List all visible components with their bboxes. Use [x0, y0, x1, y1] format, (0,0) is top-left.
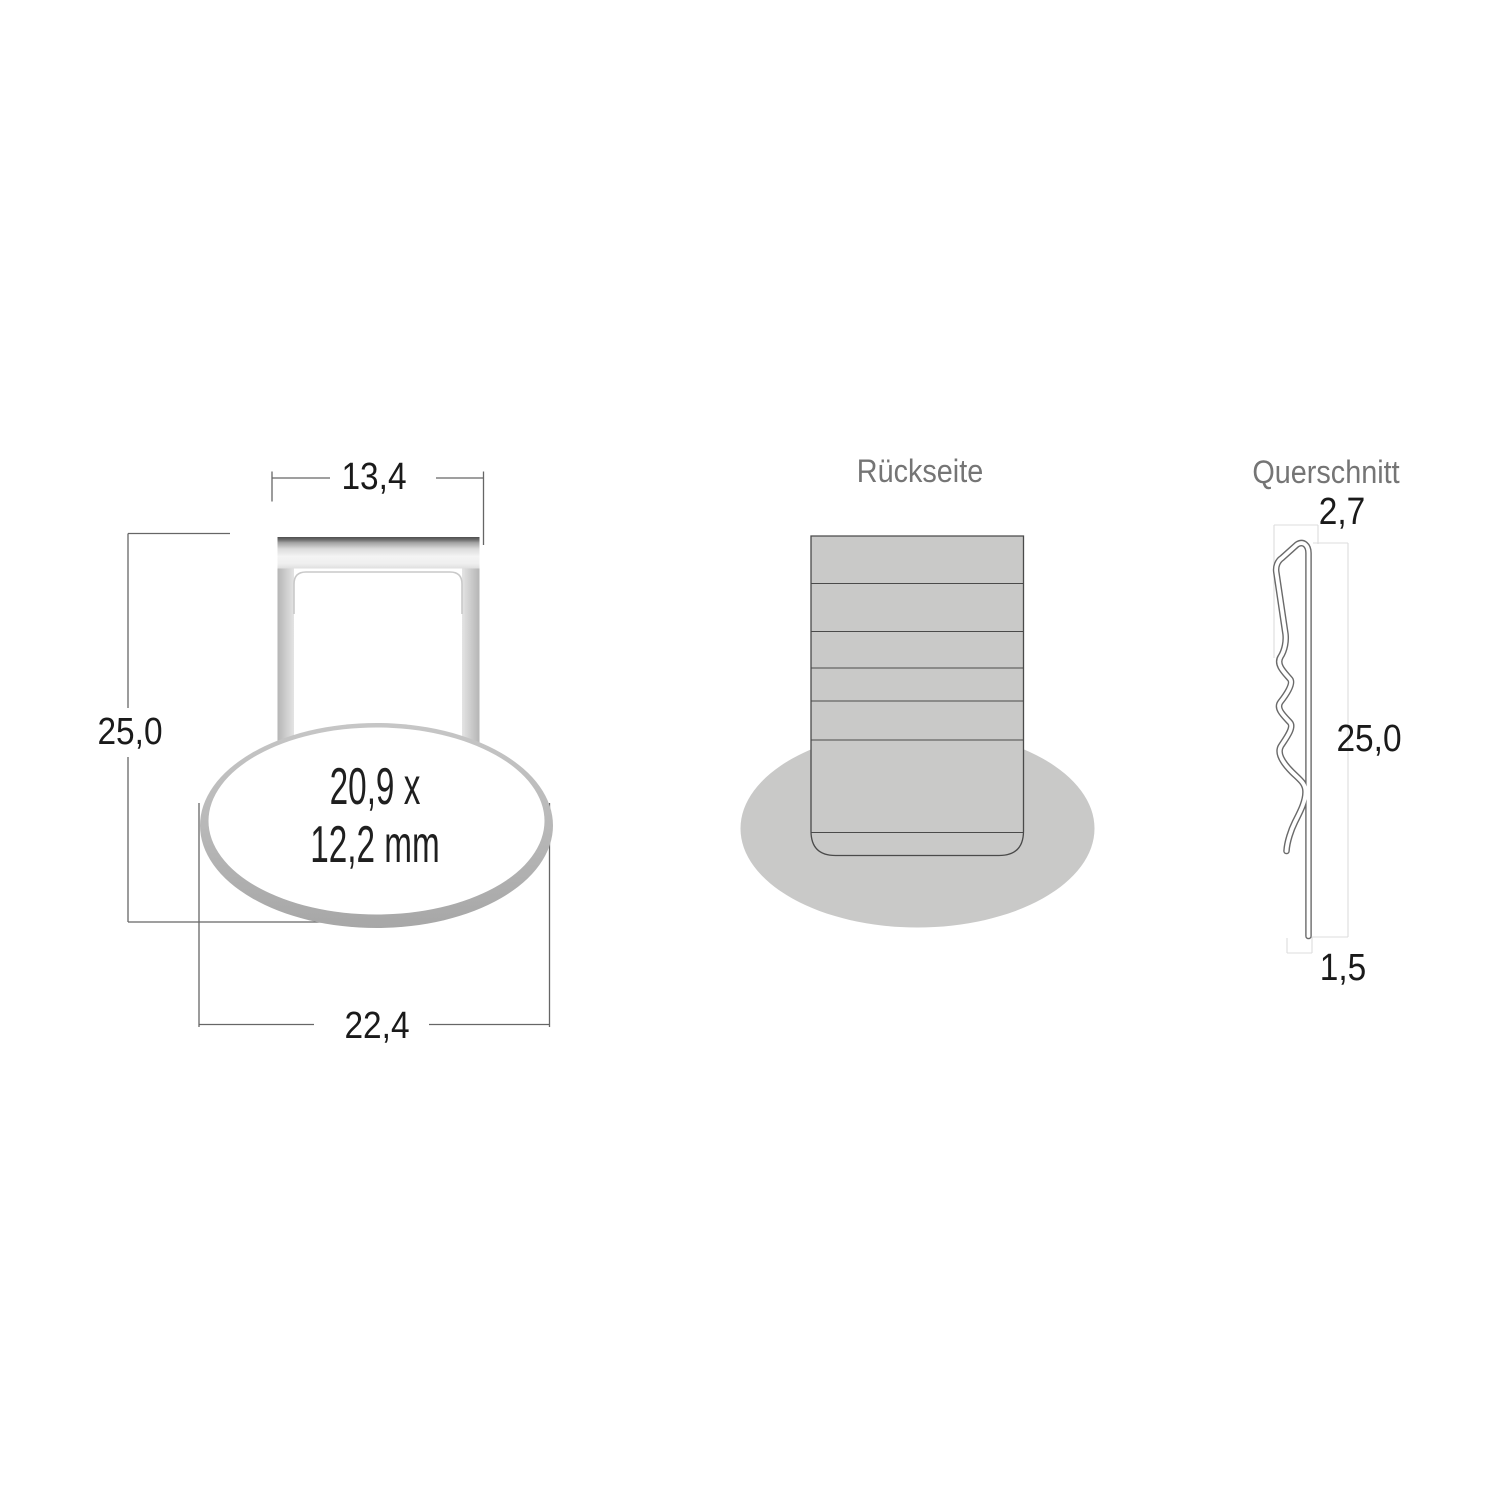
- clip-inner-corner-edge: [294, 572, 462, 614]
- cross-section-title: Querschnitt: [1252, 456, 1399, 488]
- oval-size-label-line1: 20,9 x: [330, 761, 421, 813]
- front-dim-top-width-label: 13,4: [341, 458, 406, 496]
- cross-dim-top-thickness-label: 2,7: [1319, 493, 1365, 531]
- technical-drawing-canvas: 13,4 25,0 22,4 20,9 x 12,2 mm Rückseite …: [0, 0, 1500, 1500]
- front-view: [128, 472, 553, 1028]
- oval-size-label-line2: 12,2 mm: [310, 819, 439, 871]
- clip-right-strut: [462, 556, 480, 760]
- diagram-graphics: [0, 0, 1500, 1500]
- clip-left-strut: [278, 556, 295, 760]
- front-dim-bottom-width-label: 22,4: [344, 1007, 409, 1045]
- back-view-title: Rückseite: [857, 455, 983, 487]
- profile-strip-fill: [1276, 543, 1308, 936]
- cross-dim-bottom-thickness-label: 1,5: [1320, 949, 1366, 987]
- back-view: [741, 536, 1095, 928]
- cross-dim-height-label: 25,0: [1336, 720, 1401, 758]
- front-dim-height-label: 25,0: [97, 713, 162, 751]
- clip-top-bar: [278, 537, 480, 569]
